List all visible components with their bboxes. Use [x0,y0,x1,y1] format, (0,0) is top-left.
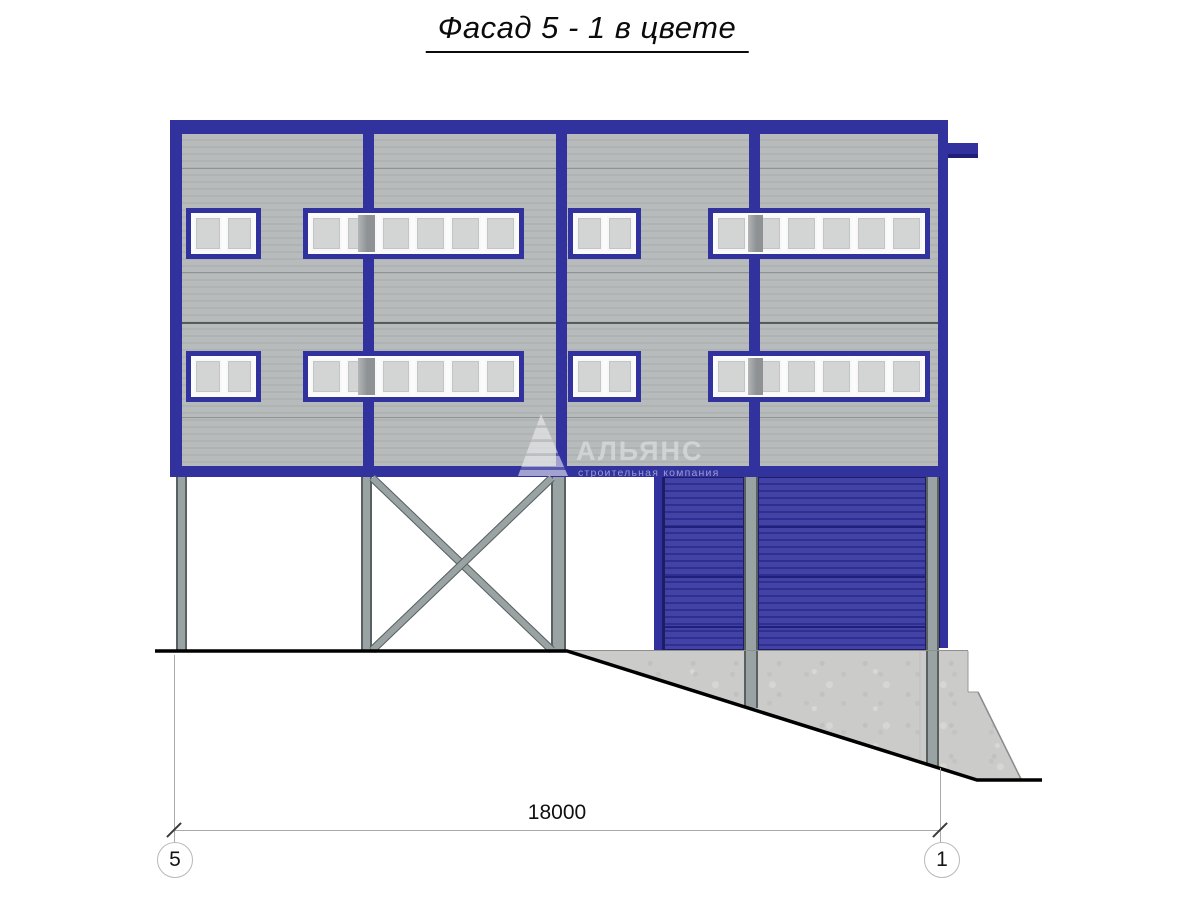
cross-bracing [372,479,551,649]
column-behind-glass [358,215,375,252]
garage-side-wall [654,477,664,651]
roof-outlet [948,143,978,158]
window-strip [303,351,524,402]
window-pane [226,216,254,251]
dimension-value: 18000 [477,801,637,825]
steel-column [926,477,939,766]
watermark-tagline: строительная компания [578,467,719,479]
window-strip [708,351,930,402]
facade-mullion [749,134,760,466]
drawing-title: Фасад 5 - 1 в цвете [426,10,749,53]
axis-label: 1 [936,848,948,872]
steel-column [361,477,372,652]
window-pane [194,216,222,251]
window-small [568,351,641,402]
sail-logo-icon [518,414,568,476]
steel-column [551,477,566,652]
steel-column [744,477,758,708]
extension-line [174,655,175,846]
steel-column [176,477,187,652]
facade-mullion [363,134,374,466]
company-watermark: АЛЬЯНС строительная компания [516,412,716,484]
window-strip [303,208,524,259]
watermark-company-name: АЛЬЯНС [576,436,704,467]
column-behind-glass [748,215,763,252]
dimension-line [174,830,941,831]
axis-bubble-1: 1 [924,842,960,878]
garage-side-wall [938,477,948,648]
axis-bubble-5: 5 [157,842,193,878]
extension-line [940,768,941,846]
window-small [186,208,261,259]
garage-door [758,477,926,650]
window-strip [708,208,930,259]
axis-label: 5 [169,848,181,872]
drawing-canvas: Фасад 5 - 1 в цвете [0,0,1200,900]
window-small [186,351,261,402]
garage-door [664,477,744,650]
column-behind-glass [358,358,375,395]
column-behind-glass [748,358,763,395]
window-small [568,208,641,259]
